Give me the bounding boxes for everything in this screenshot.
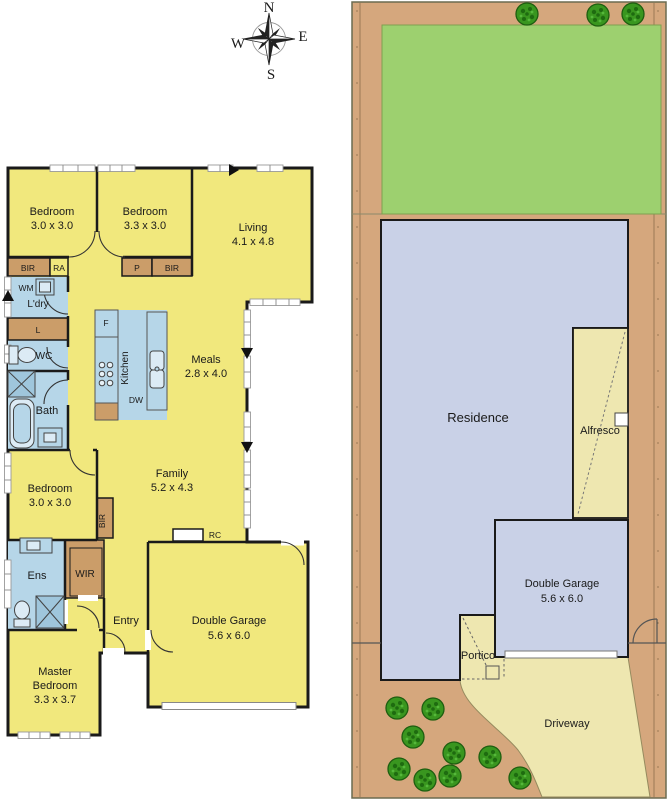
garage-door (162, 703, 296, 710)
washing-machine-icon (36, 279, 54, 295)
portico-post (486, 666, 499, 679)
floorplan-page: Residence Alfresco Double Garage 5.6 x 6… (0, 0, 669, 800)
pantry-label: P (134, 263, 140, 273)
garage-internal-door-opening (145, 630, 151, 650)
family-label: Family (156, 468, 189, 480)
shower-icon (8, 371, 35, 397)
toilet-icon (9, 346, 36, 364)
bath-vanity-icon (38, 428, 62, 447)
site-garage-dims: 5.6 x 6.0 (541, 593, 583, 605)
fridge-label: F (103, 318, 108, 328)
compass-west-label: W (231, 36, 246, 52)
kitchen-cabinet (95, 403, 118, 420)
compass-points (243, 13, 295, 65)
portico-label: Portico (461, 650, 495, 662)
tree (587, 4, 609, 26)
tree (622, 3, 644, 25)
ensuite-label: Ens (28, 570, 47, 582)
compass-south-label: S (267, 67, 275, 83)
bedroom1-label: Bedroom (30, 206, 75, 218)
bath-label: Bath (36, 405, 59, 417)
garage-label: Double Garage (192, 615, 267, 627)
bedroom3-label: Bedroom (28, 483, 73, 495)
house-outline (8, 168, 312, 735)
bedroom1-dims: 3.0 x 3.0 (31, 220, 73, 232)
driveway-label: Driveway (544, 718, 590, 730)
sink-icon (150, 351, 164, 388)
living-dims: 4.1 x 4.8 (232, 236, 274, 248)
bedroom3-dims: 3.0 x 3.0 (29, 497, 71, 509)
bedroom2-label: Bedroom (123, 206, 168, 218)
compass-rose: N E S W (231, 0, 308, 83)
ensuite-vanity-icon (20, 538, 52, 553)
linen-label: L (36, 325, 41, 335)
alfresco-label: Alfresco (580, 425, 620, 437)
meals-label: Meals (191, 354, 221, 366)
ensuite-shower-icon (36, 596, 64, 628)
lawn (382, 25, 661, 214)
wc-label: WC (36, 351, 53, 362)
master-bedroom-label-2: Bedroom (33, 680, 78, 692)
rc-bulkhead (173, 529, 203, 541)
master-bedroom-label-1: Master (38, 666, 72, 678)
garage-dims: 5.6 x 6.0 (208, 630, 250, 642)
meals-dims: 2.8 x 4.0 (185, 368, 227, 380)
ensuite-toilet-icon (14, 601, 30, 627)
bir1-label: BIR (21, 263, 35, 273)
bir3-label: BIR (97, 514, 107, 528)
site-garage-label: Double Garage (525, 578, 600, 590)
rc-label: RC (209, 530, 221, 540)
family-dims: 5.2 x 4.3 (151, 482, 193, 494)
laundry-label: L'dry (27, 299, 48, 310)
bathtub-icon (10, 399, 34, 448)
residence-label: Residence (447, 410, 508, 425)
wir-label: WIR (75, 569, 94, 580)
master-bedroom-dims: 3.3 x 3.7 (34, 694, 76, 706)
front-door-opening (103, 648, 124, 657)
kitchen-label: Kitchen (120, 351, 131, 384)
bir2-label: BIR (165, 263, 179, 273)
floor-plan: Bedroom 3.0 x 3.0 Bedroom 3.3 x 3.0 Livi… (2, 164, 312, 739)
bedroom2-dims: 3.3 x 3.0 (124, 220, 166, 232)
wir-door-opening (78, 595, 98, 601)
tree (516, 3, 538, 25)
floorplan-drawing: Residence Alfresco Double Garage 5.6 x 6… (0, 0, 669, 800)
dw-label: DW (129, 395, 143, 405)
alfresco-area (573, 328, 628, 518)
entry-label: Entry (113, 615, 139, 627)
wm-label: WM (18, 283, 33, 293)
ra-label: RA (53, 263, 65, 273)
compass-north-label: N (264, 0, 275, 16)
site-garage-door (505, 651, 617, 658)
site-plan: Residence Alfresco Double Garage 5.6 x 6… (352, 2, 666, 798)
living-label: Living (239, 222, 268, 234)
compass-east-label: E (298, 29, 307, 45)
